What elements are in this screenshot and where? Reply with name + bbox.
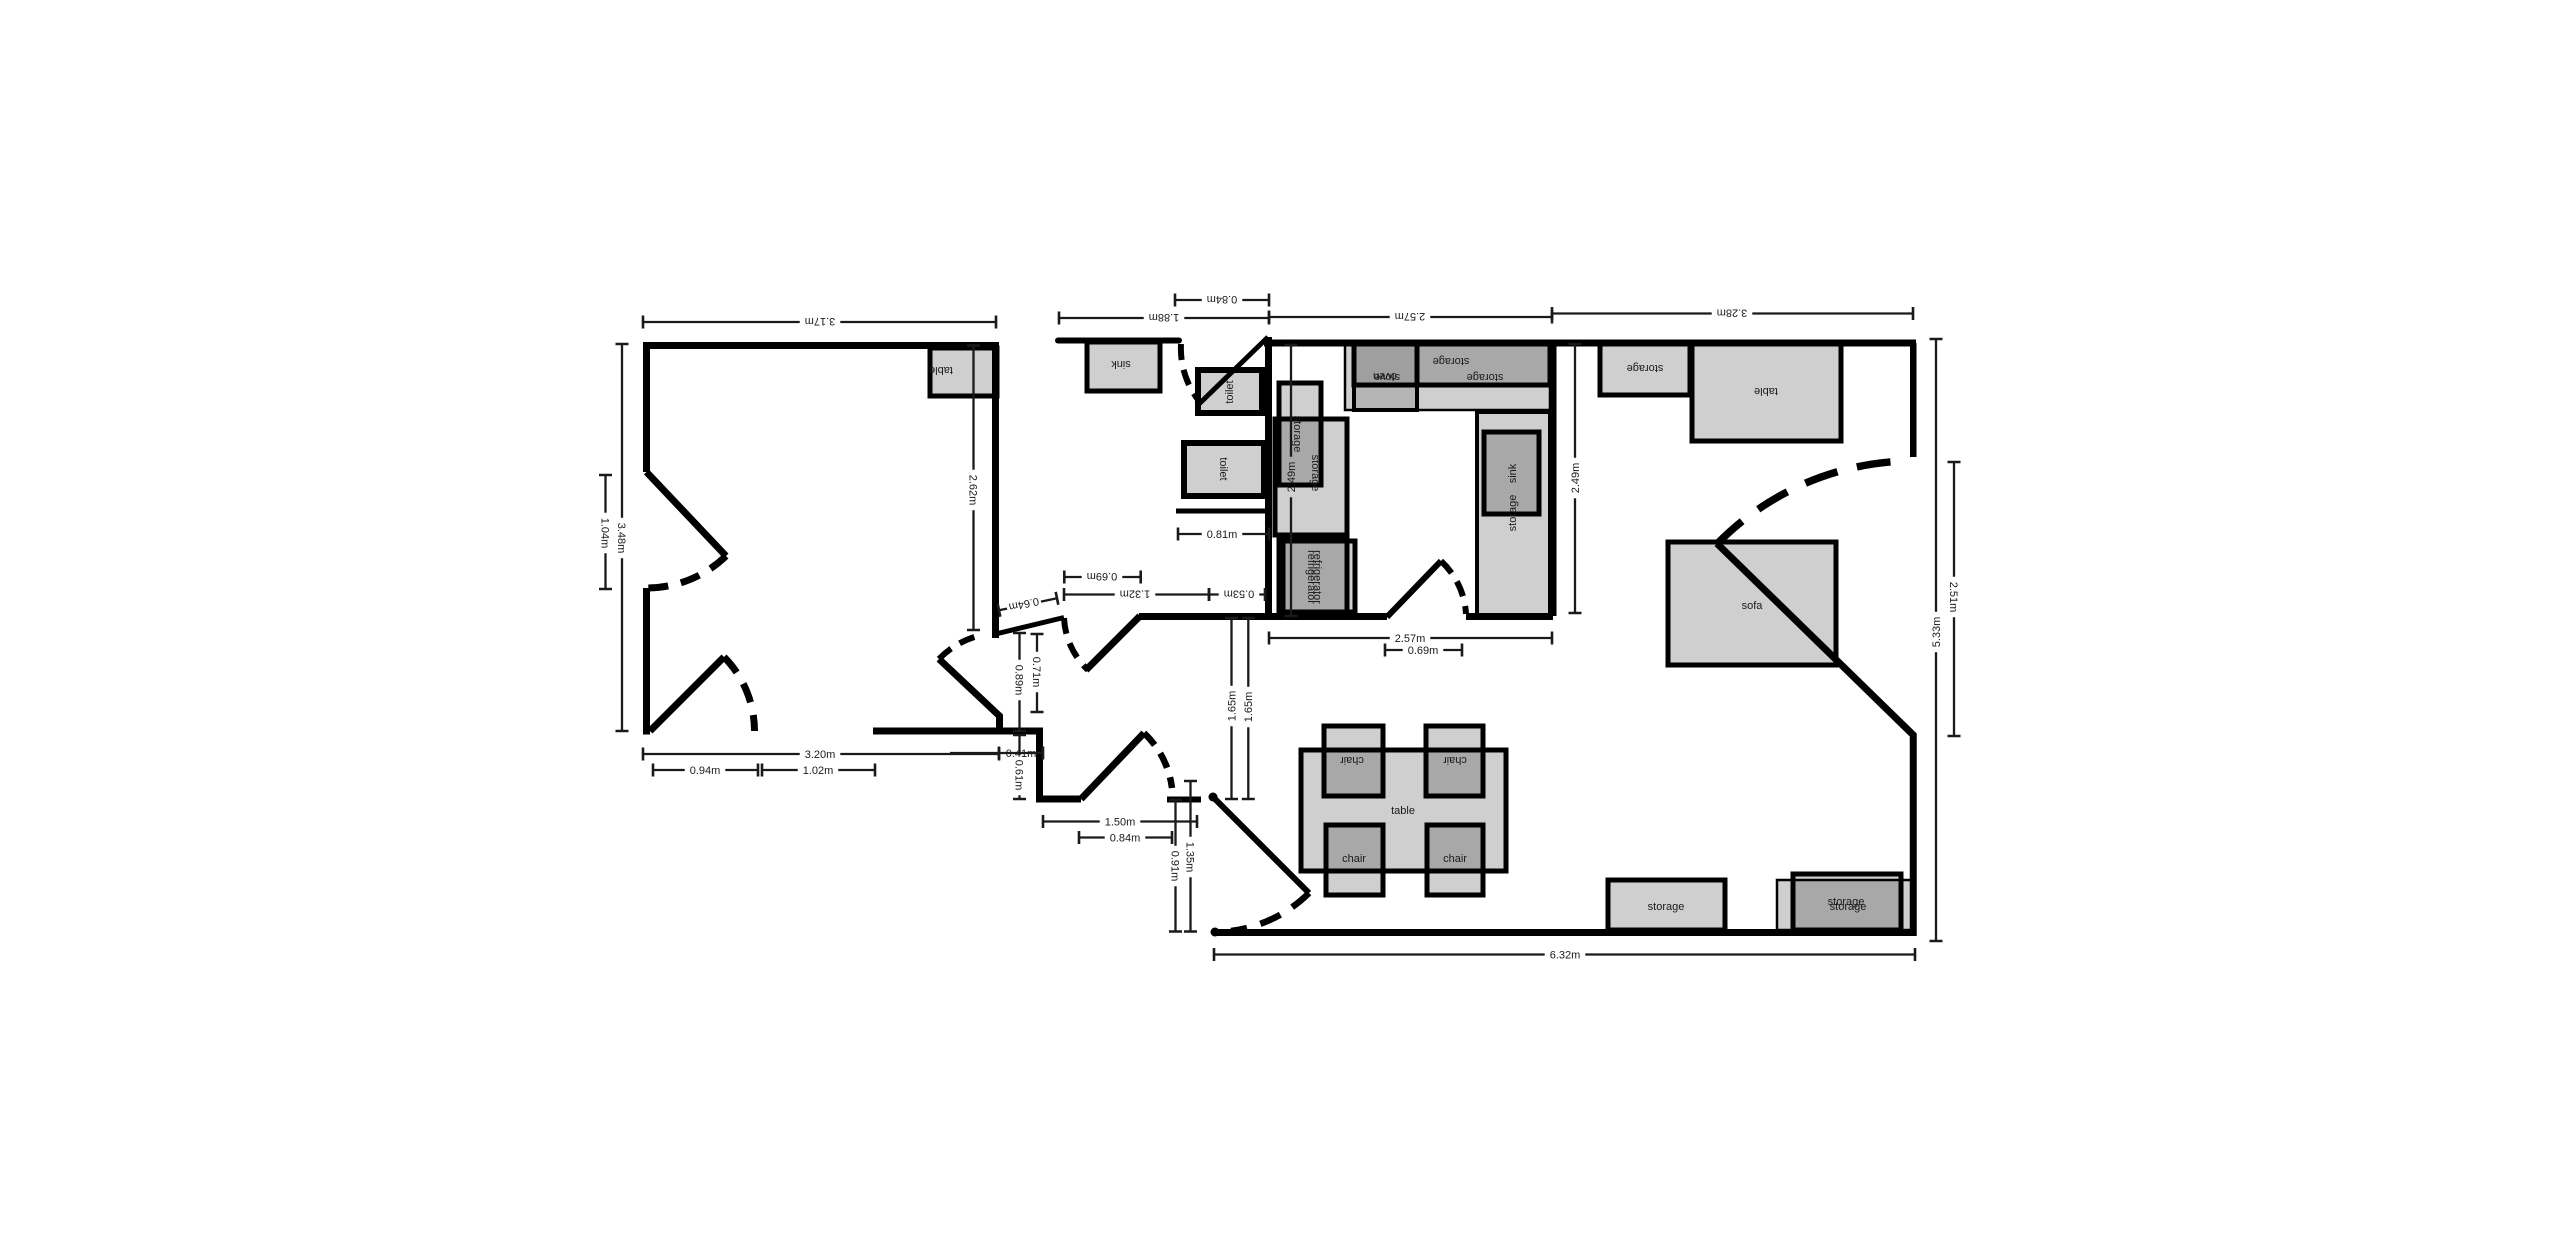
- svg-text:chair: chair: [1340, 754, 1364, 766]
- svg-text:storage: storage: [1309, 455, 1321, 492]
- svg-text:1.35m: 1.35m: [1184, 842, 1196, 873]
- svg-text:0.61m: 0.61m: [1013, 760, 1025, 791]
- svg-text:3.48m: 3.48m: [615, 523, 627, 554]
- svg-text:0.91m: 0.91m: [1169, 851, 1181, 882]
- svg-text:0.89m: 0.89m: [1013, 665, 1025, 696]
- svg-text:3.17m: 3.17m: [805, 315, 836, 327]
- svg-text:sink: sink: [1111, 358, 1131, 370]
- svg-text:2.57m: 2.57m: [1395, 310, 1426, 322]
- svg-text:oven: oven: [1373, 370, 1397, 382]
- svg-text:0.84m: 0.84m: [1207, 293, 1238, 305]
- svg-text:sink: sink: [1507, 463, 1519, 483]
- svg-text:storage: storage: [1648, 901, 1685, 913]
- svg-text:1.50m: 1.50m: [1105, 816, 1136, 828]
- svg-text:0.41m: 0.41m: [1006, 748, 1037, 760]
- svg-text:0.84m: 0.84m: [1110, 832, 1141, 844]
- svg-text:sofa: sofa: [1742, 600, 1764, 612]
- svg-text:3.28m: 3.28m: [1717, 307, 1748, 319]
- svg-text:2.57m: 2.57m: [1395, 633, 1426, 645]
- svg-text:chair: chair: [1443, 853, 1467, 865]
- svg-text:6.32m: 6.32m: [1550, 949, 1581, 961]
- svg-text:storage: storage: [1507, 495, 1519, 532]
- svg-text:2.62m: 2.62m: [967, 475, 979, 506]
- svg-text:table: table: [1391, 805, 1415, 817]
- svg-text:0.94m: 0.94m: [690, 765, 721, 777]
- svg-text:storage: storage: [1433, 355, 1470, 367]
- svg-text:2.49m: 2.49m: [1286, 462, 1298, 493]
- svg-text:storage: storage: [1830, 901, 1867, 913]
- svg-text:1.02m: 1.02m: [803, 765, 834, 777]
- svg-text:toilet: toilet: [1217, 457, 1229, 480]
- svg-text:storage: storage: [1627, 362, 1664, 374]
- svg-text:1.65m: 1.65m: [1243, 692, 1255, 723]
- svg-text:1.04m: 1.04m: [599, 518, 611, 549]
- svg-text:3.20m: 3.20m: [805, 749, 836, 761]
- svg-text:1.88m: 1.88m: [1149, 311, 1180, 323]
- svg-text:0.69m: 0.69m: [1087, 570, 1118, 582]
- svg-text:1.32m: 1.32m: [1120, 588, 1151, 600]
- svg-text:storage: storage: [1467, 371, 1504, 383]
- svg-text:chair: chair: [1443, 754, 1467, 766]
- svg-text:5.33m: 5.33m: [1931, 617, 1943, 648]
- svg-text:0.71m: 0.71m: [1030, 657, 1042, 688]
- svg-text:refrigerator: refrigerator: [1311, 550, 1323, 604]
- svg-text:chair: chair: [1342, 853, 1366, 865]
- svg-text:1.65m: 1.65m: [1226, 691, 1238, 722]
- svg-text:table: table: [929, 364, 953, 376]
- svg-text:0.81m: 0.81m: [1207, 529, 1238, 541]
- svg-text:2.49m: 2.49m: [1570, 463, 1582, 494]
- svg-text:toilet: toilet: [1224, 380, 1236, 403]
- svg-text:table: table: [1754, 385, 1778, 397]
- svg-text:storage: storage: [1291, 416, 1303, 453]
- svg-text:0.69m: 0.69m: [1408, 645, 1439, 657]
- svg-text:0.53m: 0.53m: [1224, 588, 1255, 600]
- svg-text:2.51m: 2.51m: [1947, 582, 1959, 613]
